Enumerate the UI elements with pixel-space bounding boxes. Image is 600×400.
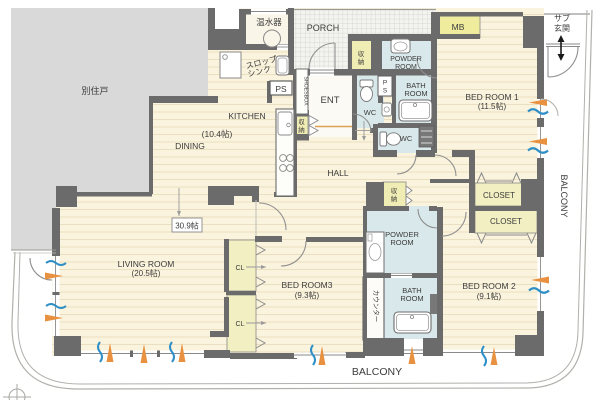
svg-text:カウンター: カウンター bbox=[372, 290, 381, 323]
svg-text:納: 納 bbox=[391, 194, 398, 203]
svg-text:WC: WC bbox=[364, 108, 377, 117]
svg-text:(11.5帖): (11.5帖) bbox=[478, 101, 507, 111]
svg-text:BALCONY: BALCONY bbox=[352, 366, 402, 378]
svg-text:BED ROOM 1: BED ROOM 1 bbox=[465, 92, 519, 102]
svg-text:30.9帖: 30.9帖 bbox=[175, 221, 199, 231]
svg-text:MB: MB bbox=[452, 22, 465, 32]
svg-text:サブ: サブ bbox=[554, 13, 570, 23]
svg-text:BED ROOM3: BED ROOM3 bbox=[281, 280, 332, 290]
svg-text:ROOM: ROOM bbox=[390, 238, 413, 247]
svg-text:BED ROOM 2: BED ROOM 2 bbox=[462, 281, 516, 291]
svg-text:HALL: HALL bbox=[327, 168, 349, 178]
svg-text:収: 収 bbox=[358, 50, 365, 58]
svg-text:POWDER: POWDER bbox=[390, 56, 422, 63]
svg-text:DINING: DINING bbox=[175, 141, 205, 151]
svg-text:ROOM: ROOM bbox=[395, 64, 417, 71]
svg-text:CLOSET: CLOSET bbox=[490, 217, 522, 226]
svg-text:LIVING ROOM: LIVING ROOM bbox=[118, 259, 175, 269]
svg-text:CL: CL bbox=[236, 265, 245, 272]
svg-text:KITCHEN: KITCHEN bbox=[228, 111, 265, 121]
svg-text:(9.1帖): (9.1帖) bbox=[477, 291, 502, 301]
svg-text:ENT: ENT bbox=[321, 95, 340, 106]
svg-text:(10.4帖): (10.4帖) bbox=[202, 129, 233, 139]
svg-text:ROOM: ROOM bbox=[404, 89, 427, 98]
svg-text:(9.3帖): (9.3帖) bbox=[295, 290, 320, 300]
svg-text:PS: PS bbox=[275, 84, 287, 94]
svg-text:収: 収 bbox=[298, 118, 305, 126]
svg-text:BALCONY: BALCONY bbox=[559, 174, 569, 217]
svg-text:P: P bbox=[383, 80, 387, 87]
svg-text:温水器: 温水器 bbox=[256, 17, 282, 27]
svg-text:納: 納 bbox=[358, 57, 365, 66]
svg-text:CLOSET: CLOSET bbox=[483, 191, 515, 200]
svg-text:納: 納 bbox=[298, 125, 305, 134]
svg-text:SHOESBOX: SHOESBOX bbox=[303, 76, 309, 106]
svg-text:ROOM: ROOM bbox=[400, 294, 423, 303]
svg-text:CL: CL bbox=[236, 321, 245, 328]
svg-text:玄関: 玄関 bbox=[554, 23, 570, 33]
svg-text:(20.5帖): (20.5帖) bbox=[132, 268, 161, 278]
svg-text:別住戸: 別住戸 bbox=[81, 85, 108, 96]
svg-text:S: S bbox=[383, 88, 388, 95]
svg-text:PORCH: PORCH bbox=[307, 23, 340, 33]
svg-text:収: 収 bbox=[391, 187, 398, 195]
svg-text:WC: WC bbox=[400, 134, 413, 143]
